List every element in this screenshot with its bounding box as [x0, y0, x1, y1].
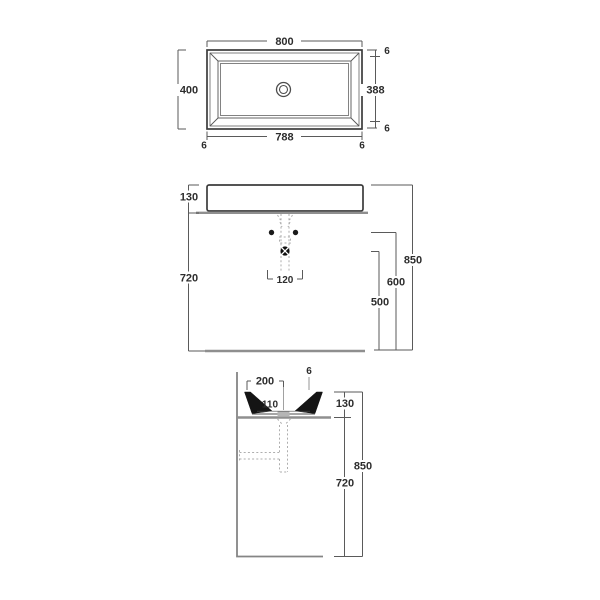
dim-line-850	[371, 185, 413, 350]
top-view-outer-rect	[207, 50, 362, 129]
dim-side-rim-thickness: 6	[306, 366, 312, 377]
dim-side-basin-height: 130	[336, 398, 354, 410]
dim-top-inner-depth: 388	[366, 85, 384, 97]
dim-top-outer-width: 800	[275, 36, 293, 48]
dim-side-bowl-depth: 110	[262, 400, 279, 411]
drain-valve-icon	[280, 246, 289, 255]
dim-top-rim-bottom-left: 6	[201, 141, 207, 152]
dim-top-rim-right-top: 6	[384, 46, 390, 57]
dim-top-outer-depth: 400	[180, 85, 198, 97]
side-view-drain-outlet	[278, 412, 290, 417]
dim-front-clearance-height: 720	[180, 273, 198, 285]
dim-line-600	[371, 233, 396, 351]
dim-side-total-height: 850	[354, 461, 372, 473]
front-view: 120 130 720 850 600 500	[175, 185, 427, 351]
side-view-wall-section-right	[295, 392, 323, 414]
side-view-drain-pipe	[240, 419, 291, 472]
dim-top-rim-bottom-right: 6	[359, 141, 365, 152]
washbasin-drawing: 800 400 6 388 6 788 6 6	[0, 0, 600, 600]
fixing-hole-left-icon	[269, 230, 274, 235]
dim-front-basin-height: 130	[180, 192, 198, 204]
top-view: 800 400 6 388 6 788 6 6	[175, 35, 390, 152]
dim-top-rim-right-bottom: 6	[384, 124, 390, 135]
dim-side-drain-offset: 200	[256, 376, 274, 388]
dim-side-clearance-height: 720	[336, 478, 354, 490]
dim-top-inner-width: 788	[275, 132, 293, 144]
side-view: 200 6 110 130 720 850	[237, 366, 377, 557]
dim-front-total-height: 850	[404, 255, 422, 267]
dim-front-drain-height: 500	[371, 297, 389, 309]
front-view-drain-pipe	[278, 214, 293, 271]
technical-drawing-canvas: 800 400 6 388 6 788 6 6	[0, 0, 600, 600]
fixing-hole-right-icon	[293, 230, 298, 235]
dim-front-drain-spacing: 120	[277, 275, 294, 286]
front-view-basin	[207, 185, 363, 211]
dim-front-supply-height: 600	[387, 277, 405, 289]
